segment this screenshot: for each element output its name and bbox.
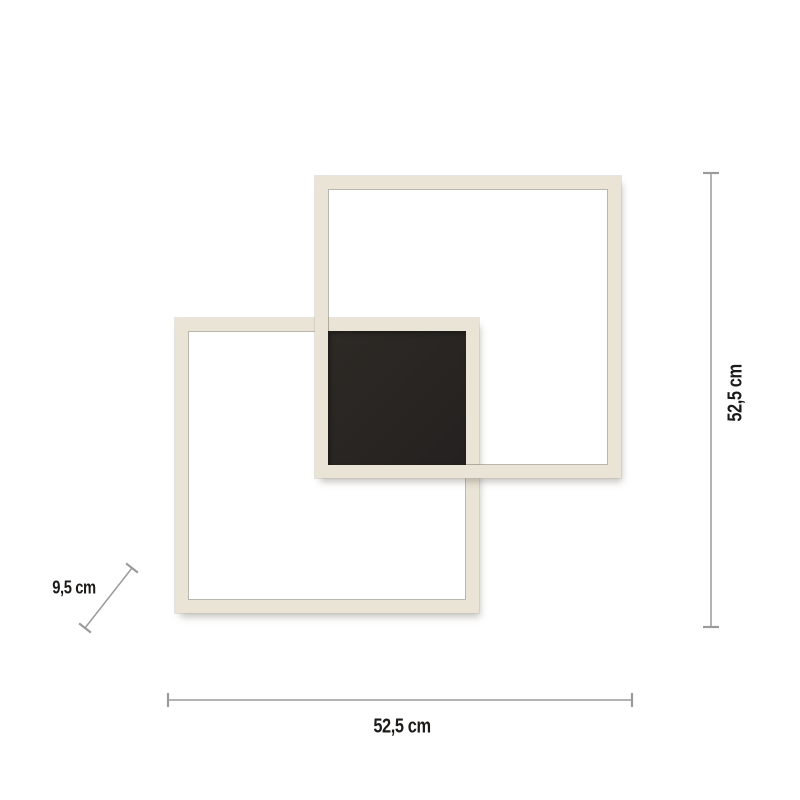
height-dimension-label: 52,5 cm bbox=[725, 364, 748, 421]
height-dimension-line bbox=[703, 173, 719, 627]
dimension-diagram: 52,5 cm 52,5 cm 9,5 cm bbox=[0, 0, 800, 800]
width-dimension-label: 52,5 cm bbox=[373, 716, 430, 739]
depth-dimension-label: 9,5 cm bbox=[52, 578, 95, 599]
lamp-center-panel bbox=[328, 331, 466, 465]
width-dimension-line bbox=[168, 693, 632, 707]
